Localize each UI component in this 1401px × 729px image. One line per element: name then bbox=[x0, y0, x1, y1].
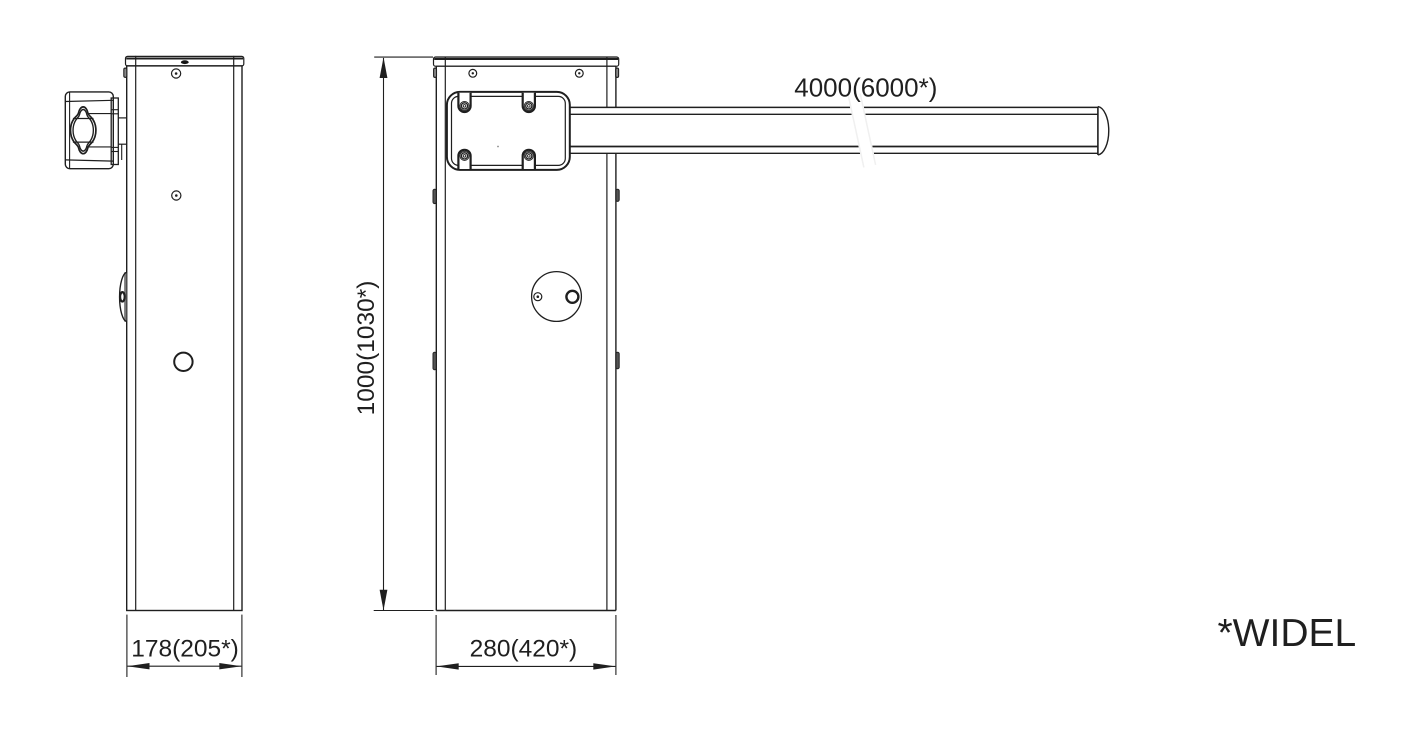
svg-text:4000(6000*): 4000(6000*) bbox=[794, 73, 937, 103]
svg-text:*WIDEL: *WIDEL bbox=[1218, 612, 1357, 655]
svg-text:280(420*): 280(420*) bbox=[470, 635, 578, 662]
svg-text:178(205*): 178(205*) bbox=[131, 635, 239, 662]
svg-text:1000(1030*): 1000(1030*) bbox=[353, 281, 380, 416]
